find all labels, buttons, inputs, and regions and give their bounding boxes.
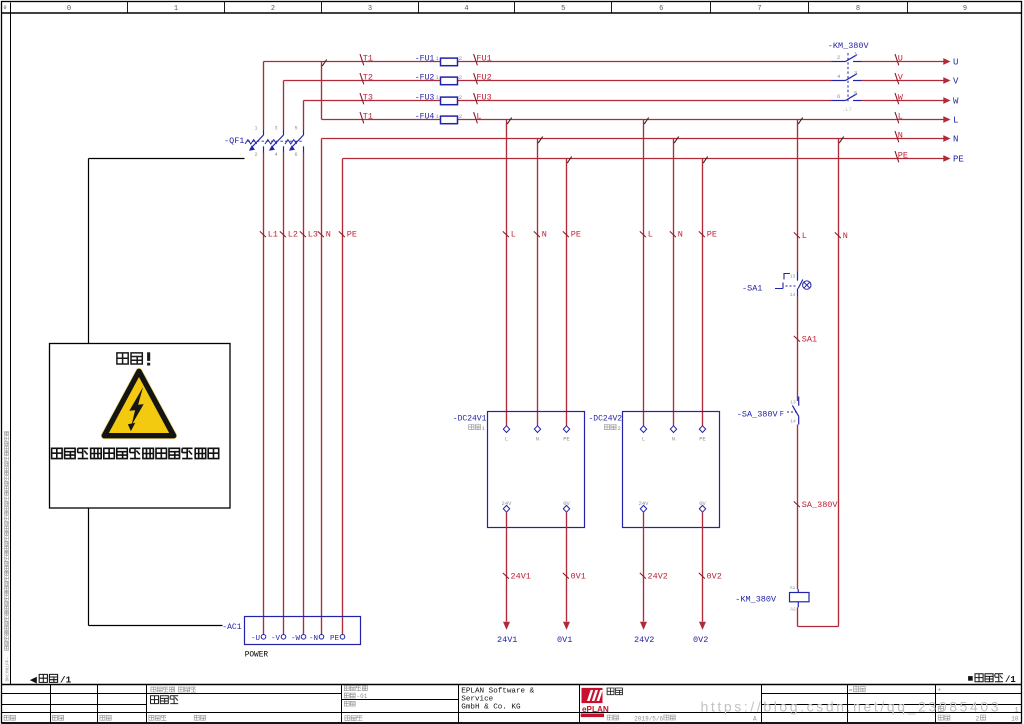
svg-text:3: 3 (368, 5, 372, 13)
svg-text:L: L (476, 111, 481, 121)
svg-text:5: 5 (295, 126, 298, 132)
svg-text:-SA_380V: -SA_380V (737, 409, 779, 419)
svg-text:SA1: SA1 (802, 335, 817, 345)
svg-text:6: 6 (659, 5, 663, 13)
svg-text:https://blog.csdn.net/qq_23085: https://blog.csdn.net/qq_23085403 (701, 699, 1002, 715)
svg-text:ePLAN: ePLAN (582, 705, 609, 714)
svg-text:PE: PE (563, 436, 570, 443)
svg-text:PE: PE (347, 230, 357, 240)
svg-text:24V2: 24V2 (648, 571, 668, 581)
svg-text:L1: L1 (268, 230, 278, 240)
svg-text:6: 6 (295, 152, 298, 158)
svg-text:T1: T1 (363, 111, 373, 121)
svg-text:1: 1 (255, 126, 258, 132)
svg-text:A: A (753, 715, 757, 722)
svg-text:L: L (511, 230, 516, 240)
svg-text:T3: T3 (363, 92, 373, 102)
svg-text:-AC1: -AC1 (222, 623, 241, 632)
svg-text:L: L (642, 436, 645, 443)
svg-text:2: 2 (459, 94, 462, 101)
svg-text:W: W (898, 92, 904, 102)
svg-text:Service: Service (461, 695, 493, 703)
svg-text:9: 9 (963, 5, 967, 13)
svg-text:14: 14 (790, 292, 796, 298)
svg-text:13: 13 (790, 274, 796, 280)
svg-text:U: U (953, 58, 958, 68)
svg-text:4: 4 (275, 152, 278, 158)
svg-text:2: 2 (255, 152, 258, 158)
svg-text:13: 13 (790, 400, 796, 406)
svg-text:/1: /1 (60, 675, 72, 686)
svg-text:2: 2 (459, 74, 462, 81)
svg-text:3: 3 (275, 126, 278, 132)
svg-text:2019/5/6: 2019/5/6 (634, 715, 663, 722)
svg-text:14: 14 (790, 418, 796, 424)
svg-text:BKCHN1PF-: BKCHN1PF- (5, 657, 11, 682)
svg-text:-V: -V (271, 635, 281, 643)
svg-text:N: N (542, 230, 547, 240)
svg-text:8: 8 (856, 5, 860, 13)
svg-text:PE: PE (898, 150, 908, 160)
svg-text:-FU2: -FU2 (415, 74, 435, 83)
svg-text:W: W (953, 97, 959, 107)
svg-text:T1: T1 (363, 53, 373, 63)
svg-text:A2: A2 (790, 606, 796, 612)
svg-text:24V2: 24V2 (634, 635, 654, 645)
svg-text:1: 1 (1015, 707, 1019, 714)
svg-text:0V1: 0V1 (571, 571, 586, 581)
svg-text:24V1: 24V1 (511, 571, 531, 581)
svg-text:FU1: FU1 (476, 53, 491, 63)
svg-text:-DC24V2: -DC24V2 (589, 414, 623, 423)
svg-text:-KM_380V: -KM_380V (735, 594, 777, 604)
svg-text:5: 5 (561, 5, 565, 13)
svg-text:6: 6 (837, 93, 840, 100)
svg-text:-FU4: -FU4 (415, 113, 435, 122)
svg-text:2: 2 (271, 5, 275, 13)
svg-text:1: 1 (174, 5, 178, 13)
svg-text:2: 2 (618, 425, 621, 432)
svg-text:GmbH & Co. KG: GmbH & Co. KG (461, 703, 521, 711)
svg-text:N: N (326, 230, 331, 240)
svg-text:N: N (536, 436, 539, 443)
svg-text:7: 7 (757, 5, 761, 13)
svg-text:5: 5 (854, 90, 857, 97)
svg-text:4: 4 (464, 5, 468, 13)
svg-text:L: L (648, 230, 653, 240)
svg-text:U: U (898, 53, 903, 63)
svg-text:-W: -W (291, 635, 301, 643)
svg-text:N: N (843, 231, 848, 241)
svg-text:F: F (780, 411, 784, 419)
svg-text:L: L (898, 111, 903, 121)
svg-text:-SA1: -SA1 (742, 283, 762, 293)
svg-text:-N: -N (309, 635, 318, 643)
svg-text:2: 2 (976, 715, 980, 722)
svg-text:2: 2 (459, 55, 462, 62)
svg-text:0V2: 0V2 (707, 571, 722, 581)
svg-text:.L7: .L7 (842, 106, 852, 113)
svg-text:POWER: POWER (245, 652, 269, 660)
svg-text:-FU1: -FU1 (415, 55, 435, 64)
svg-text:-01: -01 (357, 693, 368, 700)
svg-text:V: V (953, 77, 959, 87)
svg-text:FU2: FU2 (476, 72, 491, 82)
svg-text:-KM_380V: -KM_380V (828, 41, 870, 51)
svg-text:10: 10 (1011, 715, 1019, 722)
svg-text:A1: A1 (790, 585, 796, 591)
svg-text:-QF1: -QF1 (224, 136, 244, 146)
svg-text:2: 2 (837, 54, 840, 61)
svg-text:PE: PE (699, 436, 706, 443)
svg-text:0V1: 0V1 (557, 635, 572, 645)
svg-text:-U: -U (251, 635, 260, 643)
svg-text:L2: L2 (288, 230, 298, 240)
svg-text:PE: PE (330, 635, 340, 643)
svg-text:T2: T2 (363, 72, 373, 82)
svg-text:V: V (898, 72, 904, 82)
svg-text:EPLAN Software &: EPLAN Software & (461, 687, 534, 695)
svg-text:0: 0 (67, 5, 71, 13)
svg-text:PE: PE (707, 230, 717, 240)
svg-text:/1: /1 (1005, 675, 1016, 685)
svg-text:0: 0 (3, 5, 6, 11)
svg-text:SA_380V: SA_380V (802, 500, 839, 510)
svg-text:L: L (953, 116, 958, 126)
svg-text:L: L (505, 436, 508, 443)
svg-text:0V2: 0V2 (693, 635, 708, 645)
svg-text:=: = (849, 687, 853, 694)
svg-text:N: N (898, 130, 903, 140)
svg-text:2: 2 (459, 113, 462, 120)
svg-text:3: 3 (854, 70, 857, 77)
svg-text:N: N (672, 436, 675, 443)
svg-text:L3: L3 (308, 230, 318, 240)
svg-text:PE: PE (953, 155, 964, 165)
svg-text:N: N (678, 230, 683, 240)
svg-text:24V1: 24V1 (497, 635, 517, 645)
svg-text:PE: PE (571, 230, 581, 240)
svg-text:L: L (802, 231, 807, 241)
svg-text:+: + (938, 686, 942, 693)
svg-text:N: N (953, 135, 958, 145)
svg-text:-FU3: -FU3 (415, 94, 435, 103)
svg-text:-DC24V1: -DC24V1 (453, 414, 487, 423)
svg-text:FU3: FU3 (476, 92, 491, 102)
